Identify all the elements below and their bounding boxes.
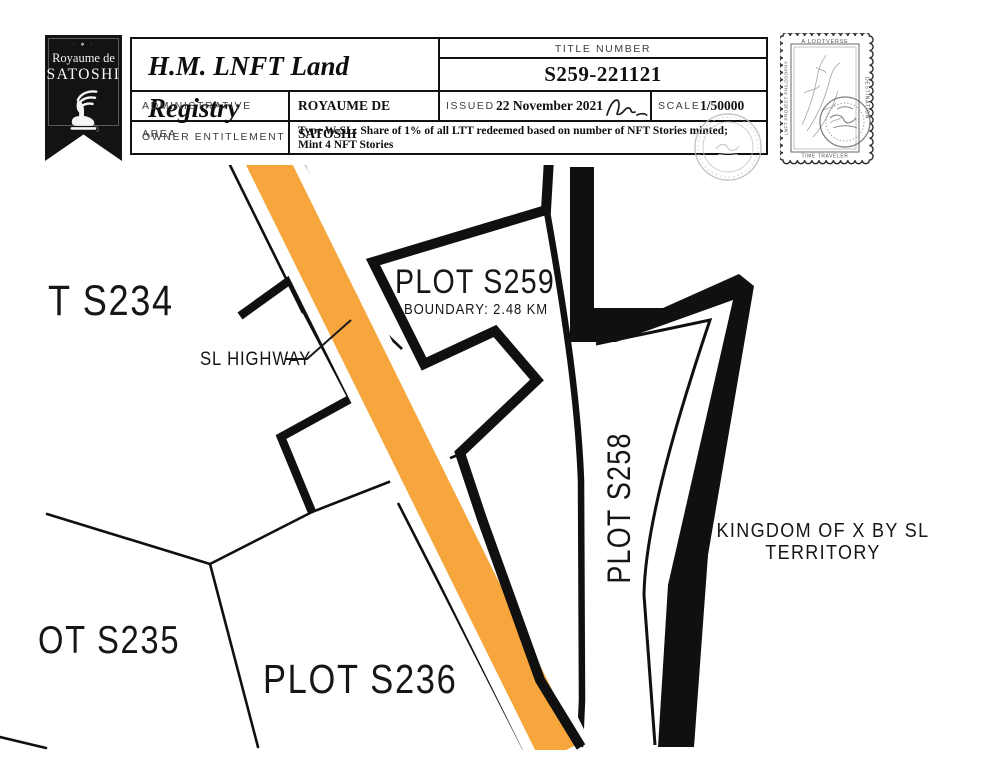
badge-ornament: · ❖ · bbox=[45, 42, 122, 48]
title-number-underline bbox=[440, 57, 766, 59]
plot-s259-boundary-label: BOUNDARY: 2.48 KM bbox=[404, 301, 548, 317]
owner-entitlement-line1: Type W-SL: Share of 1% of all LTT redeem… bbox=[298, 125, 760, 138]
scale-value: 1/50000 bbox=[700, 92, 760, 120]
land-registry-certificate: · ❖ · Royaume de SATOSHI H.M. LNFT L bbox=[0, 0, 1000, 784]
title-number-value: S259-221121 bbox=[440, 60, 766, 89]
territory-label-line1: KINGDOM OF X BY SL bbox=[717, 520, 930, 542]
registry-header-table: H.M. LNFT Land Registry TITLE NUMBER S25… bbox=[130, 37, 768, 155]
plot-boundary-lines bbox=[0, 455, 458, 748]
plot-s258-label: PLOT S258 bbox=[602, 432, 638, 583]
badge-kingdom-name: Royaume de bbox=[45, 51, 122, 66]
signature-icon bbox=[604, 94, 648, 120]
title-number-label: TITLE NUMBER bbox=[440, 42, 766, 56]
owner-entitlement-line2: Mint 4 NFT Stories bbox=[298, 139, 760, 152]
stamp-top-caption: A LOOTVERSE bbox=[801, 39, 848, 45]
kingdom-ribbon-badge: · ❖ · Royaume de SATOSHI bbox=[45, 35, 122, 161]
stamp-bottom-caption: TIME TRAVELER bbox=[801, 154, 848, 160]
cadastral-map: T S234 SL HIGHWAY PLOT S259 BOUNDARY: 2.… bbox=[0, 165, 1000, 750]
plot-s259-label: PLOT S259 bbox=[395, 263, 555, 301]
winged-boot-icon bbox=[64, 88, 104, 132]
admin-area-value: ROYAUME DE SATOSHI bbox=[298, 92, 438, 120]
document-title: H.M. LNFT Land Registry bbox=[148, 45, 434, 87]
territory-label-line2: TERRITORY bbox=[765, 542, 880, 564]
owner-entitlement-label: OWNER ENTITLEMENT bbox=[142, 122, 292, 153]
postage-stamp-icon: A LOOTVERSE DESTINATION LNFT PROJECT PHI… bbox=[780, 33, 874, 165]
admin-area-label: ADMINISTRATIVE AREA bbox=[142, 92, 288, 120]
badge-kingdom-name-2: SATOSHI bbox=[45, 66, 122, 84]
stamp-left-caption: LNFT PROJECT PHILOSOPHY bbox=[784, 61, 789, 135]
plot-s234-label: T S234 bbox=[48, 277, 174, 325]
scale-label: SCALE bbox=[658, 92, 700, 120]
col-divider-scale bbox=[650, 90, 652, 122]
territory-border-band bbox=[570, 167, 754, 747]
highway-label: SL HIGHWAY bbox=[200, 348, 311, 369]
plot-s235-label: OT S235 bbox=[38, 617, 180, 661]
issued-date: 22 November 2021 bbox=[496, 92, 616, 120]
issued-label: ISSUED bbox=[446, 92, 494, 120]
plot-s236-label: PLOT S236 bbox=[263, 657, 457, 702]
